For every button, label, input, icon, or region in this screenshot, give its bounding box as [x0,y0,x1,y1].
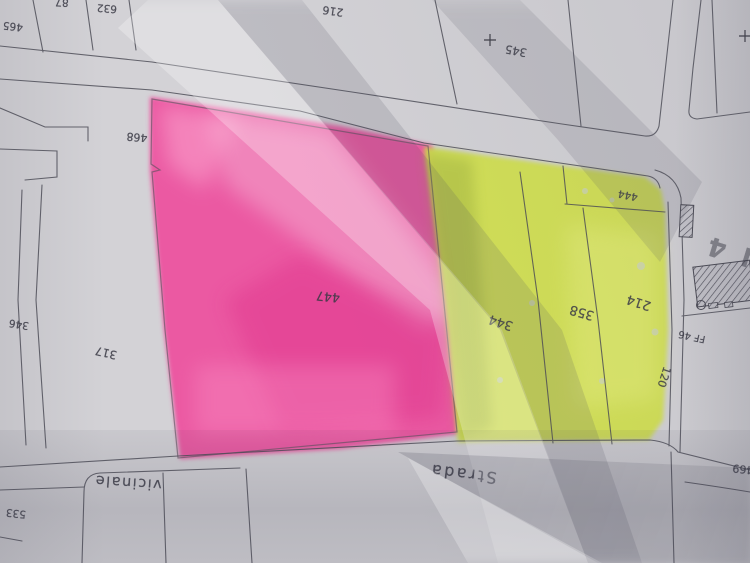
parcel345-right-edge [568,0,581,126]
parcel-number-469: 469 [732,461,750,476]
topleft-line-1 [33,0,43,52]
top-road-upper-edge [0,0,673,136]
left-step-2 [0,149,57,180]
parcel216-right-edge [435,0,457,104]
left-step-1 [0,108,88,141]
left-vertical-2 [36,185,46,448]
parcel-number-533: 533 [5,506,26,520]
bottom-right-line [685,482,750,492]
cadastral-map-photo: 465 87 632 216 345 468 317 346 533 447 3… [0,0,750,563]
parcel-number-447: 447 [315,288,340,305]
bottom-left-line [0,537,22,541]
bottom-road-lower-edge [0,487,84,490]
parcel-number-216: 216 [322,3,345,19]
topright-line [712,0,717,113]
topleft-line-2 [86,0,93,50]
survey-cross-icon [739,30,750,42]
bottom-vertical-2 [246,469,252,563]
survey-cross-icon [484,34,496,46]
topleft-line-3 [129,0,136,50]
survey-cross-marks [484,30,750,46]
parcel-number-87: 87 [55,0,69,8]
pink-light-streak [195,365,395,435]
building-small-hatched [679,205,694,238]
branch-road-right-edge [689,0,750,119]
parcel-number-468: 468 [126,130,148,145]
building-annex-2 [724,302,733,308]
parcel-number-465: 465 [2,19,23,33]
building-annex-1 [708,302,718,308]
bottom-vertical-1 [163,473,166,563]
parcel-number-632: 632 [96,1,117,15]
line-below-buildings [682,308,750,316]
